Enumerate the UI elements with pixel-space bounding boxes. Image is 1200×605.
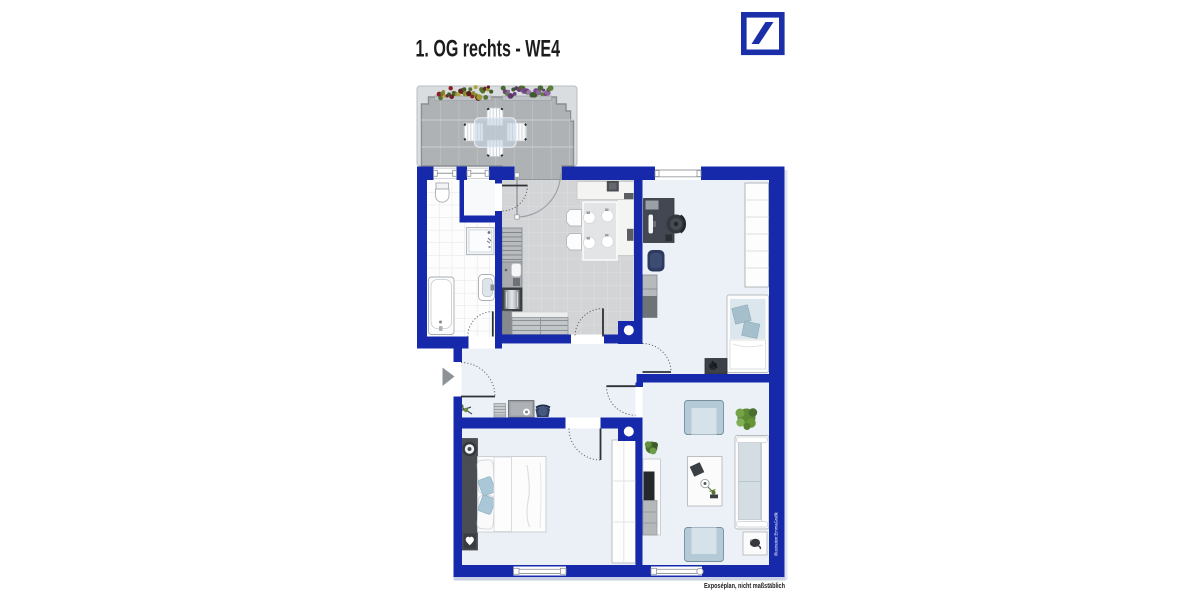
svg-text:Exposéplan, nicht maßstäblich: Exposéplan, nicht maßstäblich <box>704 581 785 590</box>
svg-text:Illustration:EmmaGrafik: Illustration:EmmaGrafik <box>774 511 779 555</box>
svg-text:1. OG rechts - WE4: 1. OG rechts - WE4 <box>416 36 561 63</box>
